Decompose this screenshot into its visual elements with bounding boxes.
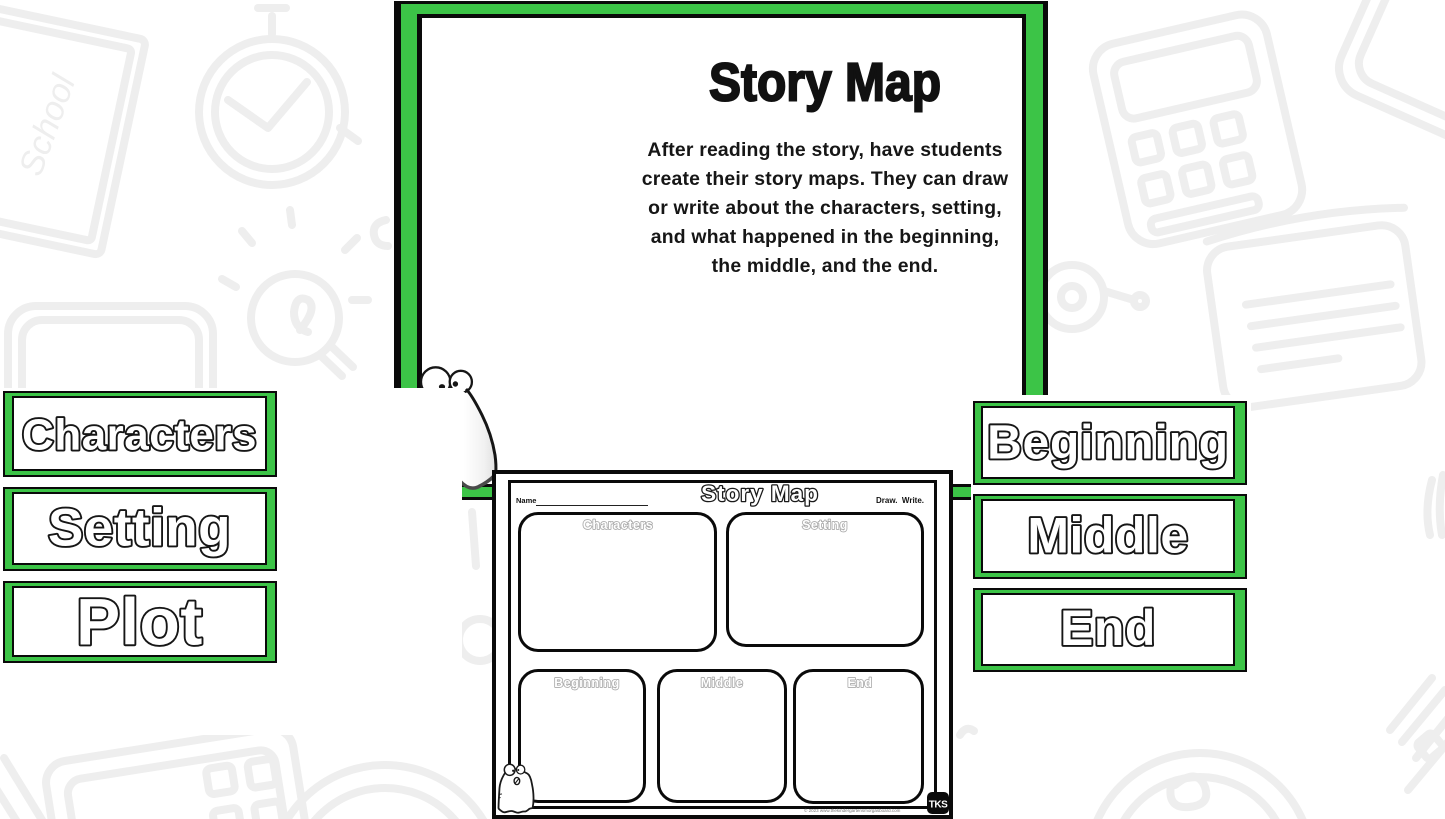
svg-text:Middle: Middle [1027,508,1188,564]
svg-text:Setting: Setting [48,498,231,557]
svg-text:Beginning: Beginning [554,676,620,690]
svg-text:Beginning: Beginning [987,417,1229,470]
svg-text:School: School [12,69,84,181]
svg-text:End: End [1060,600,1156,656]
svg-text:End: End [847,676,872,690]
svg-text:TKS: TKS [929,800,948,811]
svg-text:Setting: Setting [802,518,848,532]
svg-text:Characters: Characters [583,518,653,532]
svg-text:Plot: Plot [76,588,203,655]
svg-text:Story Map: Story Map [701,481,819,506]
svg-text:Characters: Characters [22,410,257,459]
svg-text:Middle: Middle [701,676,744,690]
